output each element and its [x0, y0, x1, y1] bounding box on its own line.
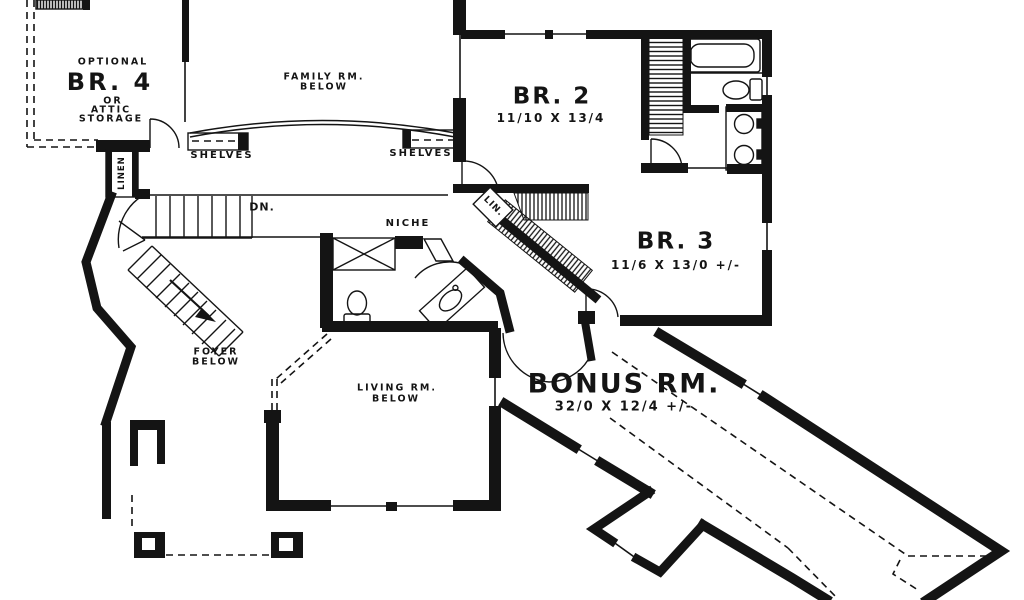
foyer-below-label: BELOW	[192, 357, 240, 367]
toilet-icon-main-bath	[723, 79, 762, 100]
room-dims-br2: 11/10 X 13/4	[497, 112, 606, 124]
vanity-sink-icon	[420, 268, 485, 330]
shelves-left-label: SHELVES	[190, 151, 253, 161]
porch-columns	[134, 532, 303, 558]
br2-closet-hatch	[649, 38, 683, 135]
balcony-rail	[190, 121, 455, 138]
room-label-bonus: BONUS RM.	[528, 371, 721, 398]
room-dims-br3: 11/6 X 13/0 +/-	[611, 259, 741, 271]
room-label-br3: BR. 3	[637, 231, 715, 254]
shelves-right-label: SHELVES	[389, 149, 452, 159]
family-room-below-label: BELOW	[300, 82, 348, 92]
floor-plan-page: OPTIONAL BR. 4 OR ATTIC STORAGE FAMILY R…	[0, 0, 1024, 600]
room-label-br2: BR. 2	[513, 86, 591, 109]
room-label-br4: BR. 4	[67, 70, 153, 94]
toilet-icon-hall-bath	[344, 291, 370, 324]
bathtub-icon	[684, 39, 760, 72]
double-vanity-icon	[726, 107, 762, 170]
linen-closet-label: LINEN	[118, 156, 127, 190]
staircase	[118, 196, 252, 356]
living-room-label: LIVING RM.	[357, 383, 437, 393]
living-room-below-label: BELOW	[372, 394, 420, 404]
niche-skylight-icon	[333, 238, 453, 270]
room-dims-bonus: 32/0 X 12/4 +/-	[555, 401, 693, 414]
br4-optional-label: OPTIONAL	[78, 57, 149, 67]
niche-label: NICHE	[386, 219, 431, 229]
stairs-down-label: DN.	[249, 202, 275, 213]
dashed-lines	[27, 0, 988, 597]
br4-storage-label: STORAGE	[79, 114, 143, 124]
